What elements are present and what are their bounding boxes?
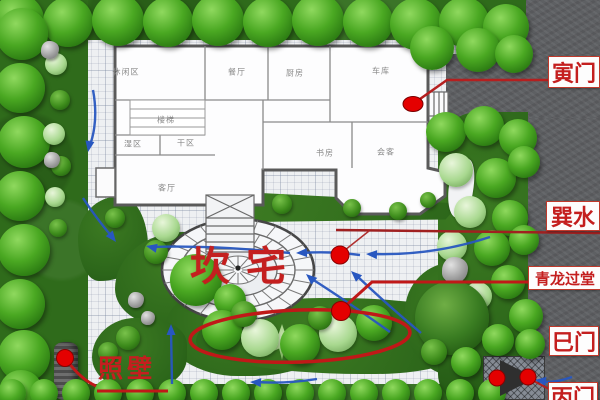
flow-node-dot-2 [332, 302, 351, 321]
zhaobi-dot [57, 350, 74, 367]
yin-gate-line [420, 80, 548, 99]
label-qinglong-pass: 青龙过堂 [528, 266, 600, 290]
label-bing-gate: 丙门 [548, 382, 598, 400]
flow-node-dot-1 [331, 246, 349, 264]
red-annotations [0, 0, 600, 400]
qinglong-line [341, 282, 532, 310]
zhaobi-line [68, 362, 96, 386]
site-plan-canvas: 休闲区餐厅厨房车库楼梯湿区干区书房会客客厅 [0, 0, 600, 400]
tree-cluster-ellipse [189, 306, 411, 366]
kan-house-label: 坎宅 [156, 247, 326, 287]
driveway-dot-2 [520, 369, 536, 385]
label-yin-gate: 寅门 [548, 56, 600, 88]
screen-wall-label: 照壁 [98, 357, 156, 382]
label-si-gate: 巳门 [549, 326, 599, 356]
driveway-dot-1 [489, 370, 505, 386]
yin-gate-dot [403, 97, 423, 112]
label-xun-water: 巽水 [546, 201, 600, 231]
